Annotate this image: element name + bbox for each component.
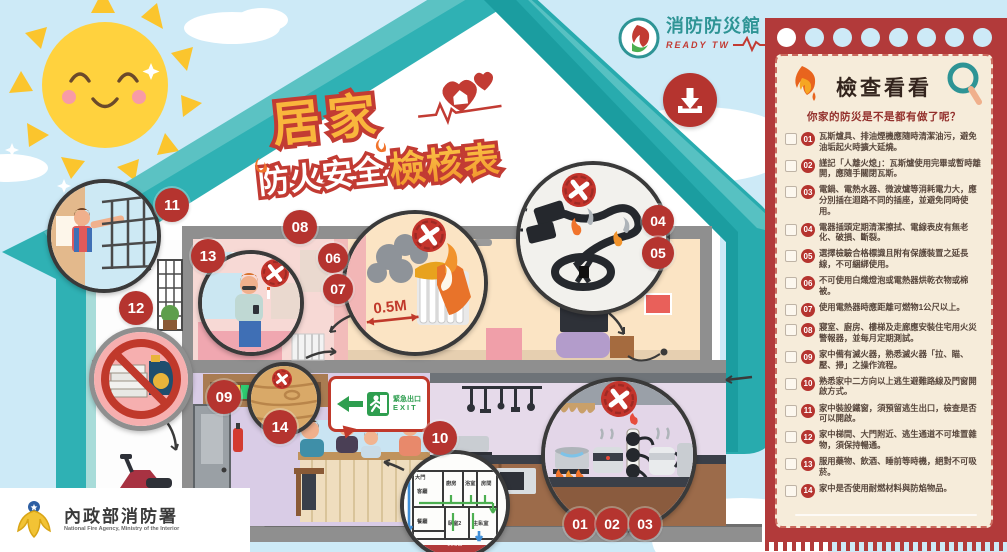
marker-badge-10: 10 [423, 421, 457, 455]
agency-emblem-icon [12, 497, 56, 543]
marker-circle-11 [47, 179, 161, 293]
exit-running-man-icon [367, 392, 389, 416]
marker-badge-06: 06 [318, 243, 348, 273]
svg-text:餐廳: 餐廳 [416, 517, 428, 525]
checklist-item: 11家中裝設鐵窗，須預留逃生出口，檢查是否可以開啟。 [785, 403, 983, 424]
item-text: 使用電熱器時應距離可燃物1公尺以上。 [819, 302, 965, 313]
thermos-icon [677, 443, 693, 477]
marker-badge-13: 13 [191, 239, 225, 273]
svg-text:廚房: 廚房 [446, 479, 456, 487]
svg-text:主臥室: 主臥室 [473, 519, 489, 527]
item-number: 08 [801, 323, 815, 337]
item-number: 02 [801, 159, 815, 173]
item-number: 06 [801, 276, 815, 290]
marker-badge-02: 02 [596, 508, 628, 540]
site-title: 消防防災館 [666, 17, 775, 35]
exit-sign-en: EXIT [393, 404, 421, 412]
item-number: 04 [801, 223, 815, 237]
title-line2a: 防火安全 [256, 152, 387, 200]
item-number: 05 [801, 249, 815, 263]
checklist-item: 12家中梯間、大門附近、逃生通道不可堆置雜物，須保持暢通。 [785, 429, 983, 450]
checklist-item: 13服用藥物、飲酒、睡前等時機，絕對不可吸菸。 [785, 456, 983, 477]
item-number: 03 [801, 185, 815, 199]
agency-name-en: National Fire Agency, Ministry of the In… [64, 526, 179, 532]
title-line1: 居家 [270, 88, 387, 152]
checklist-item: 01瓦斯爐具、排油煙機應隨時清潔油污，避免油垢起火時擴大延燒。 [785, 131, 983, 152]
item-text: 家中是否使用耐燃材料與防焰物品。 [819, 483, 952, 494]
item-text: 選擇檢驗合格標識且附有保護裝置之延長線，不可綑綁使用。 [819, 248, 983, 269]
item-number: 07 [801, 303, 815, 317]
marker-badge-03: 03 [629, 508, 661, 540]
checkbox[interactable] [785, 224, 797, 236]
binder-holes [777, 28, 992, 47]
marker-circle-10: 大門 客廳 廚房 浴室 房間 餐廳 臥室2 主臥室 後陽台 [400, 450, 510, 552]
checklist-item: 05選擇檢驗合格標識且附有保護裝置之延長線，不可綑綁使用。 [785, 248, 983, 269]
svg-text:客廳: 客廳 [416, 487, 428, 495]
checkbox[interactable] [785, 351, 797, 363]
svg-text:浴室: 浴室 [465, 479, 475, 487]
checkbox[interactable] [785, 304, 797, 316]
marker-badge-05: 05 [642, 237, 674, 269]
item-text: 服用藥物、飲酒、睡前等時機，絕對不可吸菸。 [819, 456, 983, 477]
checklist-item: 06不可使用白熾燈泡或電熱器烘乾衣物或棉被。 [785, 275, 983, 296]
item-text: 家中裝設鐵窗，須預留逃生出口，檢查是否可以開啟。 [819, 403, 983, 424]
download-icon [676, 86, 704, 114]
checklist-item: 08寢室、廚房、樓梯及走廊應安裝住宅用火災警報器，並每月定期測試。 [785, 322, 983, 343]
title-line2b: 檢核表 [387, 138, 502, 190]
checkbox[interactable] [785, 405, 797, 417]
marker-badge-14: 14 [263, 410, 297, 444]
checkbox[interactable] [785, 277, 797, 289]
item-text: 寢室、廚房、樓梯及走廊應安裝住宅用火災警報器，並每月定期測試。 [819, 322, 983, 343]
heart-house-icon [414, 71, 502, 125]
checklist-item: 04電器插頭定期清潔擦拭、電線表皮有無老化、破損、斷裂。 [785, 222, 983, 243]
agency-logo: 內政部消防署 National Fire Agency, Ministry of… [12, 497, 179, 543]
item-text: 電器插頭定期清潔擦拭、電線表皮有無老化、破損、斷裂。 [819, 222, 983, 243]
checklist-title: 檢查看看 [785, 72, 983, 102]
side-table [610, 336, 634, 358]
item-text: 瓦斯爐具、排油煙機應隨時清潔油污，避免油垢起火時擴大延燒。 [819, 131, 983, 152]
marker-badge-08: 08 [283, 210, 317, 244]
checkbox[interactable] [785, 250, 797, 262]
checklist-item: 10熟悉家中二方向以上逃生避難路線及門窗開啟方式。 [785, 376, 983, 397]
exit-sign: 緊急出口 EXIT [328, 376, 430, 432]
checkbox[interactable] [785, 324, 797, 336]
item-text: 熟悉家中二方向以上逃生避難路線及門窗開啟方式。 [819, 376, 983, 397]
marker-badge-01: 01 [564, 508, 596, 540]
site-tagline: READY TW [666, 40, 730, 50]
marker-badge-12: 12 [119, 291, 153, 325]
item-number: 14 [801, 484, 815, 498]
wall-plug-icon [661, 349, 668, 356]
item-number: 01 [801, 132, 815, 146]
pink-desk [486, 328, 522, 360]
checklist-item: 07使用電熱器時應距離可燃物1公尺以上。 [785, 302, 983, 317]
checkbox[interactable] [785, 160, 797, 172]
checkbox[interactable] [785, 133, 797, 145]
panel-divider [795, 514, 977, 516]
armchair [556, 332, 610, 358]
item-text: 電鍋、電熱水器、微波爐等消耗電力大，應分別插在迴路不同的插座，並避免同時使用。 [819, 184, 983, 216]
checkbox[interactable] [785, 186, 797, 198]
item-number: 13 [801, 457, 815, 471]
marker-badge-07: 07 [323, 274, 353, 304]
checklist-item: 09家中備有滅火器，熟悉滅火器「拉、瞄、壓、掃」之操作流程。 [785, 349, 983, 370]
item-number: 11 [801, 404, 815, 418]
checkbox[interactable] [785, 431, 797, 443]
checklist-items: 01瓦斯爐具、排油煙機應隨時清潔油污，避免油垢起火時擴大延燒。 02謹記「人離火… [785, 131, 983, 498]
marker-badge-11: 11 [155, 188, 189, 222]
poster: 居家 防火安全 檢核表 [0, 0, 1007, 552]
item-number: 10 [801, 377, 815, 391]
item-text: 家中備有滅火器，熟悉滅火器「拉、瞄、壓、掃」之操作流程。 [819, 349, 983, 370]
item-text: 家中梯間、大門附近、逃生通道不可堆置雜物，須保持暢通。 [819, 429, 983, 450]
svg-text:臥室2: 臥室2 [448, 519, 461, 527]
marker-circle-04-05 [516, 161, 670, 315]
checklist-subtitle: 你家的防災是不是都有做了呢？ [785, 109, 983, 124]
agency-name: 內政部消防署 [64, 508, 179, 527]
checklist-item: 14家中是否使用耐燃材料與防焰物品。 [785, 483, 983, 498]
checklist-item: 03電鍋、電熱水器、微波爐等消耗電力大，應分別插在迴路不同的插座，並避免同時使用… [785, 184, 983, 216]
checkbox[interactable] [785, 458, 797, 470]
marker-circle-06-07: 0.5M [342, 210, 488, 356]
svg-text:大門: 大門 [415, 473, 425, 481]
panel-bottom-ticks [765, 542, 1007, 551]
marker-badge-09: 09 [207, 380, 241, 414]
svg-text:房間: 房間 [481, 479, 491, 487]
right-wall [700, 238, 712, 362]
wall-art [645, 294, 671, 314]
site-logo: 消防防災館 READY TW [618, 17, 775, 59]
exit-arrow-icon [337, 395, 363, 413]
distance-label: 0.5M [373, 297, 408, 317]
item-text: 不可使用白熾燈泡或電熱器烘乾衣物或棉被。 [819, 275, 983, 296]
checklist-panel: 檢查看看 你家的防災是不是都有做了呢？ 01瓦斯爐具、排油煙機應隨時清潔油污，避… [765, 18, 1007, 542]
checkbox[interactable] [785, 485, 797, 497]
checklist-item: 02謹記「人離火熄」：瓦斯爐使用完畢或暫時離開，應隨手關閉瓦斯。 [785, 158, 983, 179]
item-number: 12 [801, 430, 815, 444]
site-logo-mark-icon [618, 17, 660, 59]
item-number: 09 [801, 350, 815, 364]
download-button[interactable] [663, 73, 717, 127]
checkbox[interactable] [785, 378, 797, 390]
item-text: 謹記「人離火熄」：瓦斯爐使用完畢或暫時離開，應隨手關閉瓦斯。 [819, 158, 983, 179]
marker-badge-04: 04 [642, 205, 674, 237]
svg-text:後陽台: 後陽台 [447, 539, 463, 547]
marker-circle-12 [89, 327, 193, 431]
